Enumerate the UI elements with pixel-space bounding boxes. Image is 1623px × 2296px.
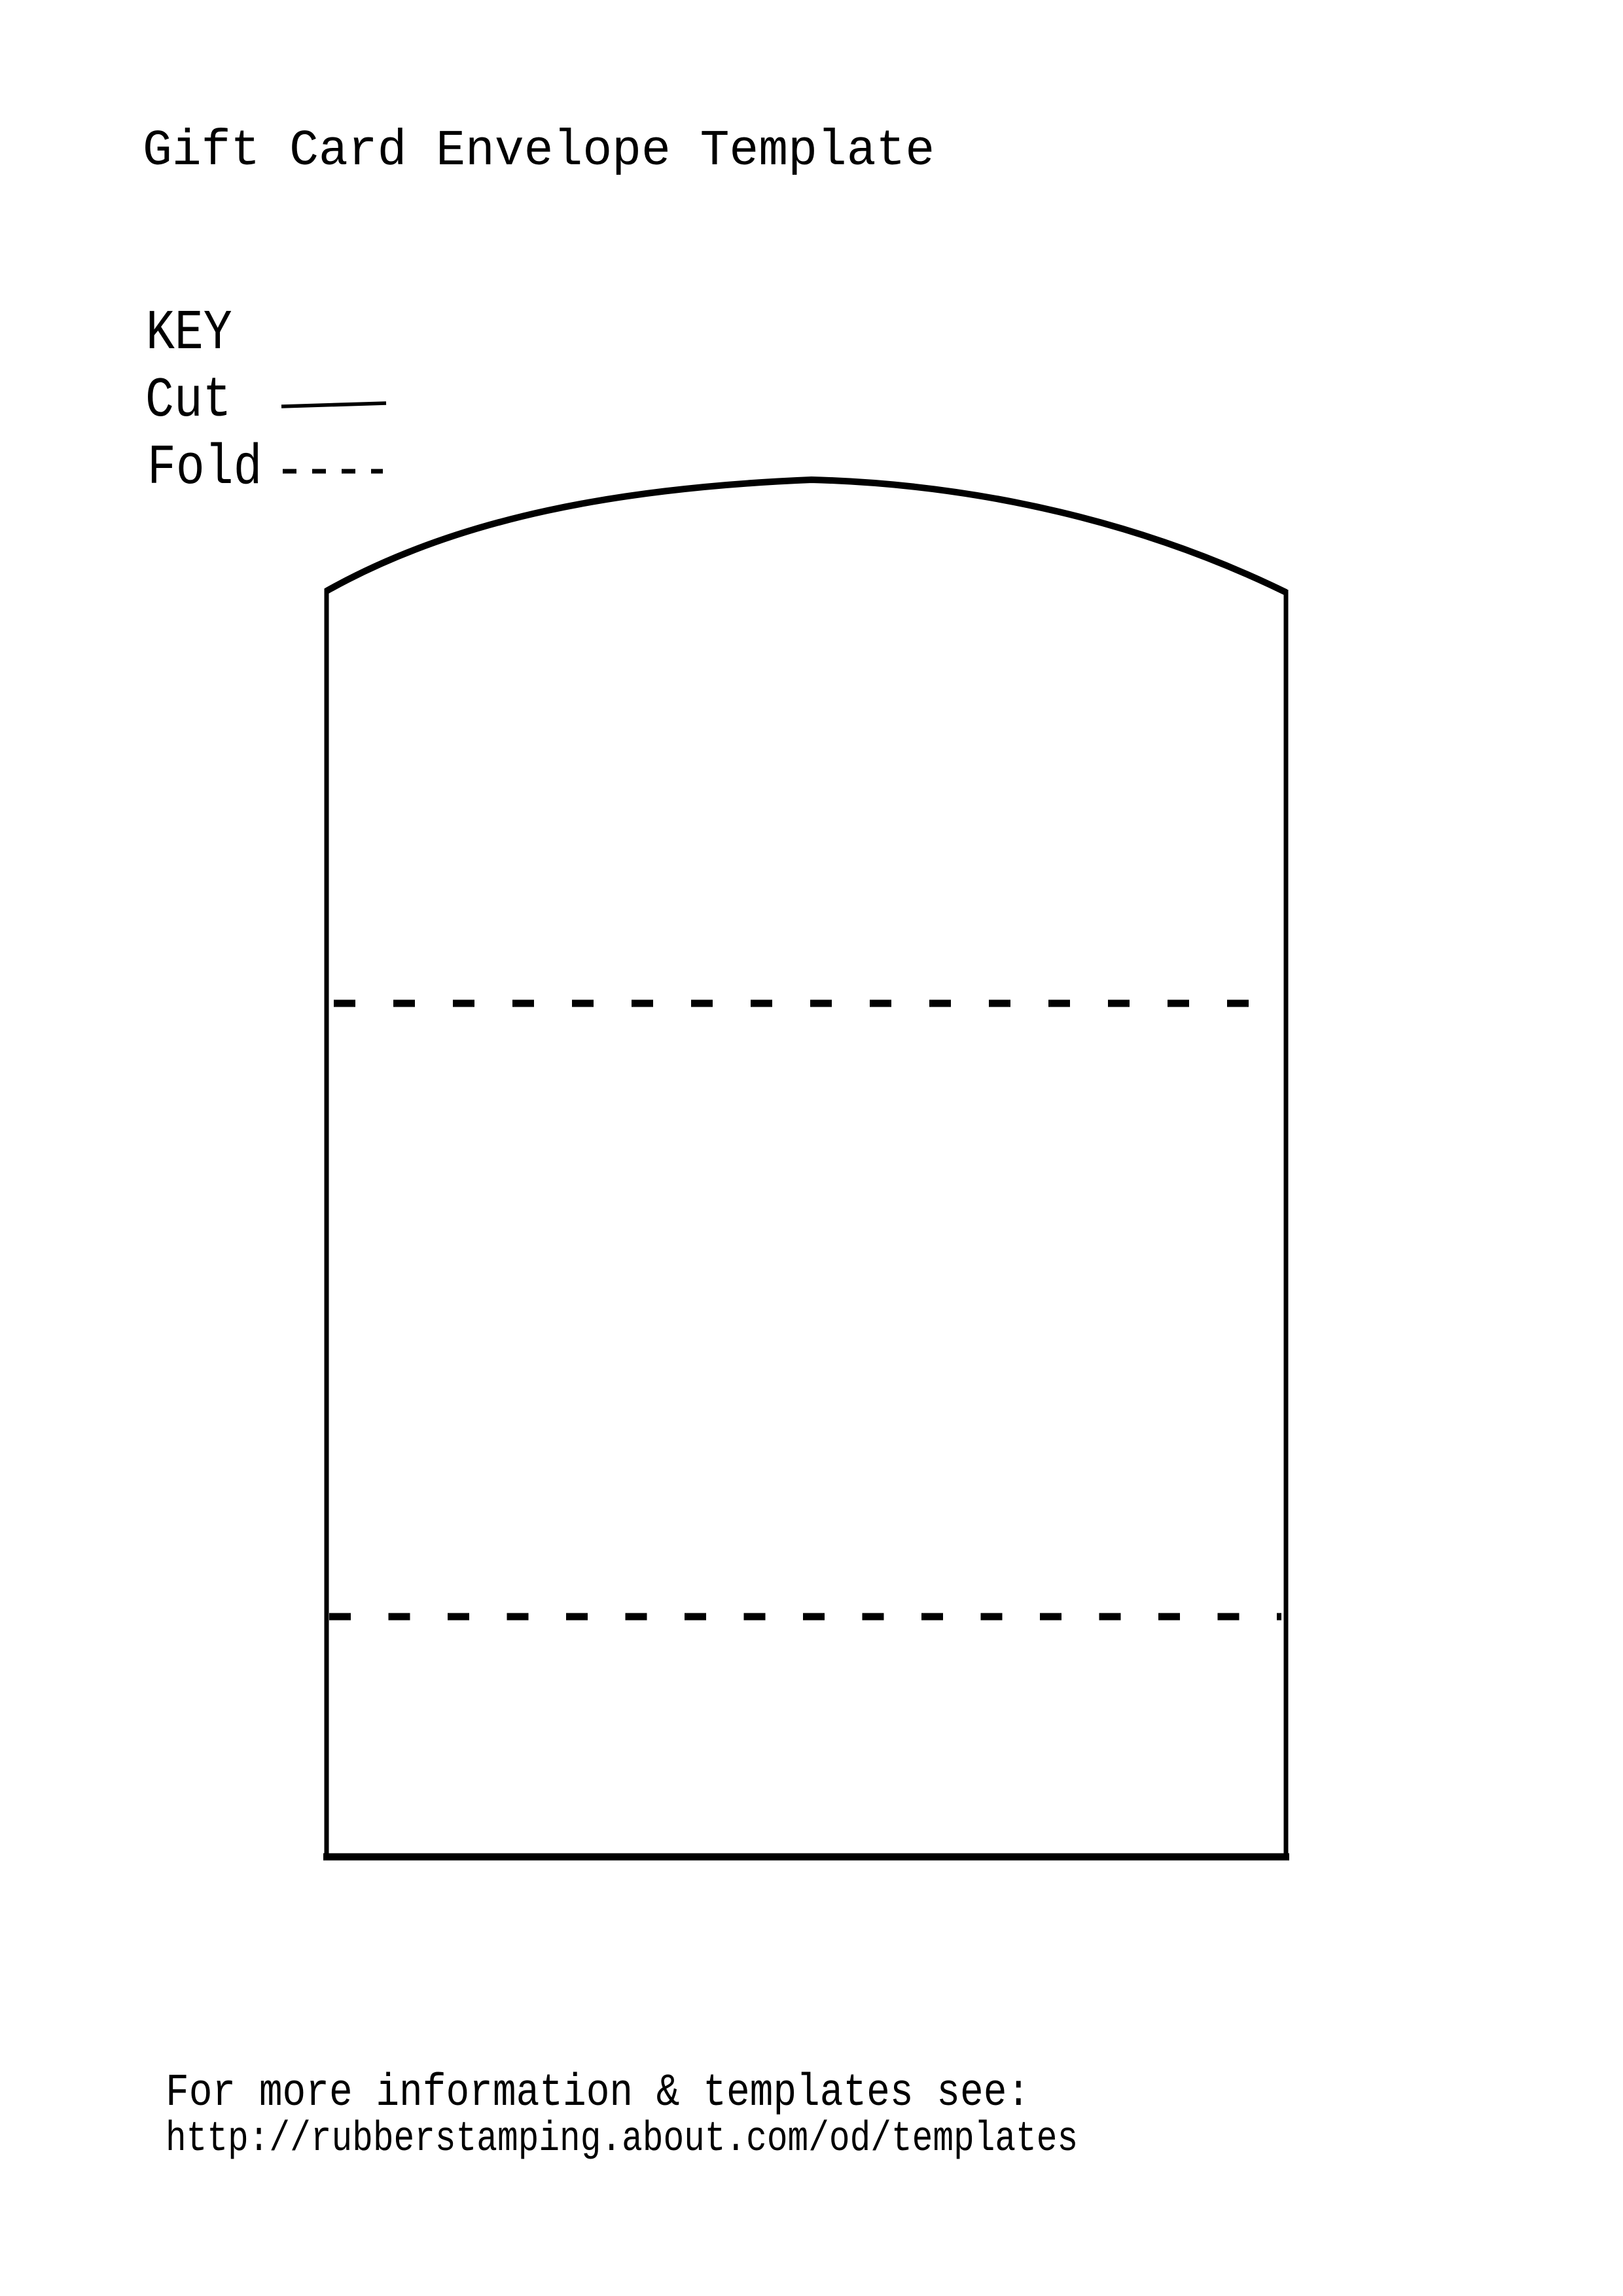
cut-line-sample — [281, 403, 386, 406]
envelope-template-page: Gift Card Envelope Template KEY Cut Fold… — [0, 0, 1623, 2296]
footer-url-text: http://rubberstamping.about.com/od/templ… — [166, 2119, 1078, 2161]
footer-info-text: For more information & templates see: — [166, 2071, 1030, 2117]
envelope-top-curve — [327, 480, 1286, 592]
envelope-template-figure — [0, 0, 1623, 2296]
